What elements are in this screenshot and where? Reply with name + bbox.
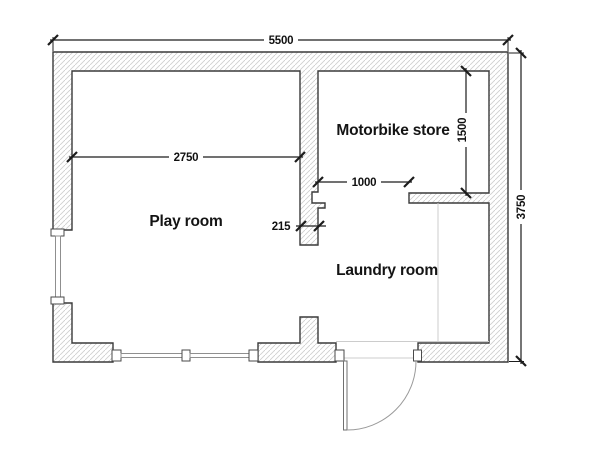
dimension-motorbike-store-depth: 1500 [456, 66, 471, 198]
windows [51, 229, 258, 361]
dimension-label-opening-width: 1000 [352, 177, 377, 189]
dimension-label-play-room-width: 2750 [174, 152, 199, 164]
dimension-play-room-width: 2750 [67, 151, 305, 164]
door-jamb-left [335, 350, 344, 361]
wall-pier-bottom-center [258, 317, 336, 362]
room-label-play-room: Play room [149, 213, 222, 230]
window-glazing-bottom-1 [121, 354, 182, 358]
faint-lines [336, 203, 489, 358]
window-mullion [182, 350, 190, 361]
dimension-overall-width: 5500 [48, 34, 513, 51]
window-sill [51, 297, 64, 304]
door-swing-arc [347, 361, 416, 430]
door-leaf [344, 361, 348, 430]
dimension-overall-depth: 3750 [509, 48, 528, 366]
window-sill [249, 350, 258, 361]
walls [53, 52, 508, 362]
door-jamb-right [414, 350, 422, 361]
main-walls [53, 52, 508, 362]
dimension-opening-width: 1000 [313, 176, 414, 189]
floor-plan: 5500 3750 2750 1500 1000 [0, 0, 600, 455]
floor-plan-drawing: 5500 3750 2750 1500 1000 [0, 0, 600, 455]
entry-door [335, 350, 422, 430]
window-glazing-left [56, 236, 61, 297]
room-label-motorbike-store: Motorbike store [336, 122, 450, 139]
dimension-label-overall-width: 5500 [269, 35, 294, 47]
corner-wall-bottom-left [53, 303, 113, 362]
window-sill [51, 229, 64, 236]
room-label-laundry-room: Laundry room [336, 262, 438, 279]
window-glazing-bottom-2 [190, 354, 249, 358]
window-sill [112, 350, 121, 361]
dimension-label-motorbike-store-depth: 1500 [457, 118, 469, 143]
dimension-label-overall-depth: 3750 [516, 195, 528, 220]
dimension-label-wall-thickness: 215 [272, 221, 291, 233]
